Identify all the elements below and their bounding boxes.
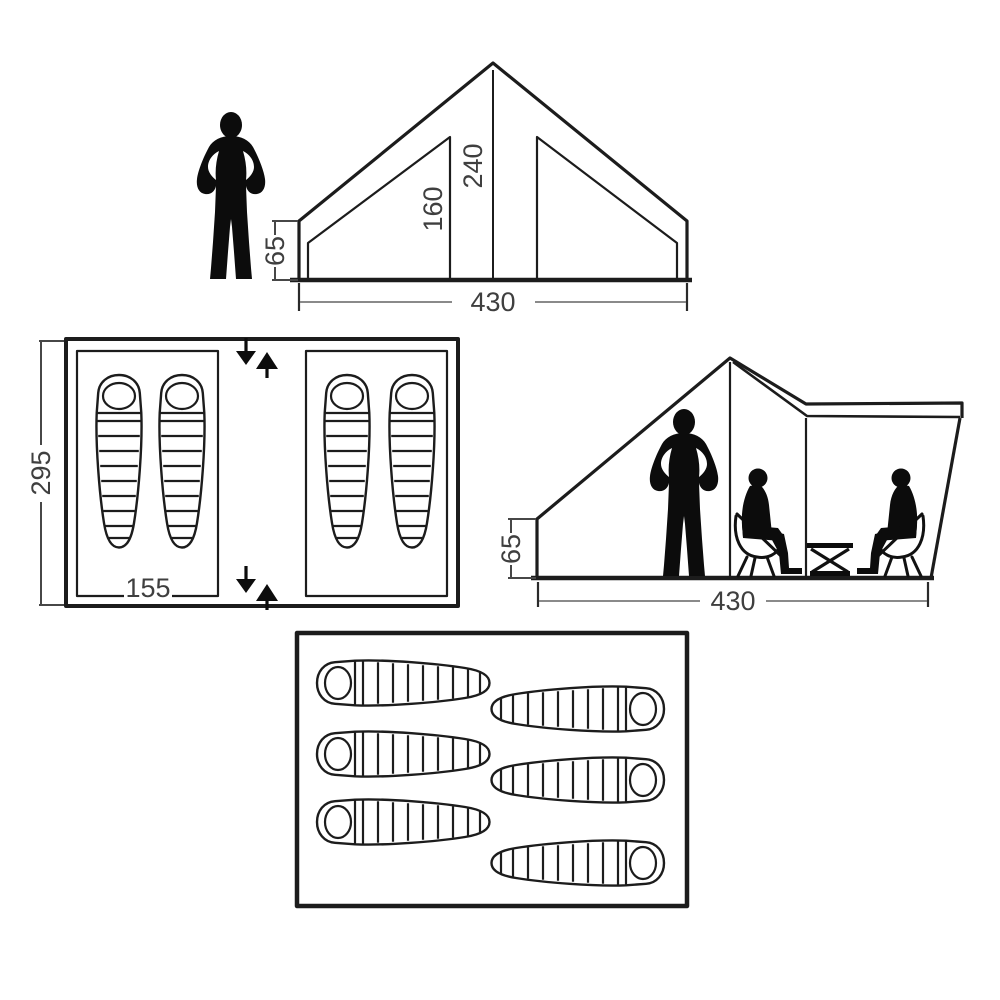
sleeping-bag-icon	[492, 686, 665, 731]
floor-plan: 295 155	[26, 338, 458, 610]
dim-label-floor-depth: 295	[26, 450, 56, 495]
sleeping-bag-icon	[96, 375, 141, 548]
tent-dimensions-diagram: 240 160 65 430 295 155	[0, 0, 1000, 1000]
tent-side-outline	[537, 358, 962, 578]
dim-label-front-width: 430	[470, 287, 515, 317]
sitting-person-mirrored-icon	[857, 469, 924, 577]
sleeping-bag-icon	[317, 799, 490, 844]
sleeping-bag-icon	[159, 375, 204, 548]
sleeping-bag-icon	[389, 375, 434, 548]
dim-label-side-length: 430	[710, 586, 755, 616]
canopy-inner-line	[733, 362, 960, 417]
sitting-person-icon	[735, 469, 802, 577]
standing-person-icon	[650, 409, 718, 576]
front-view: 240 160 65 430	[197, 63, 692, 317]
dim-label-cabin-width: 155	[125, 573, 170, 603]
dim-label-front-wall-height: 65	[260, 236, 290, 266]
side-view: 65 430	[496, 358, 962, 616]
sleeping-bag-icon	[492, 840, 665, 885]
dim-label-side-wall-height: 65	[496, 534, 526, 564]
side-right-wall	[931, 418, 960, 578]
dim-label-ridge-height: 240	[458, 143, 488, 188]
diagram-canvas: 240 160 65 430 295 155	[0, 0, 1000, 1000]
camping-table-icon	[807, 543, 853, 576]
entrance-arrow-down-icon	[236, 579, 256, 593]
sleeping-layout	[297, 633, 687, 906]
front-inner-panel-right	[537, 137, 677, 280]
entrance-arrows-top	[236, 338, 278, 378]
entrance-arrow-up-icon	[256, 352, 278, 369]
entrance-arrows-bottom	[236, 566, 278, 610]
scale-person-icon	[197, 112, 265, 279]
sleeping-bag-icon	[317, 660, 490, 705]
entrance-arrow-up-icon	[256, 584, 278, 601]
dim-label-inner-height: 160	[418, 186, 448, 231]
entrance-arrow-down-icon	[236, 351, 256, 365]
sleeping-bag-icon	[324, 375, 369, 548]
sleeping-bag-icon	[492, 757, 665, 802]
sleeping-bag-icon	[317, 731, 490, 776]
